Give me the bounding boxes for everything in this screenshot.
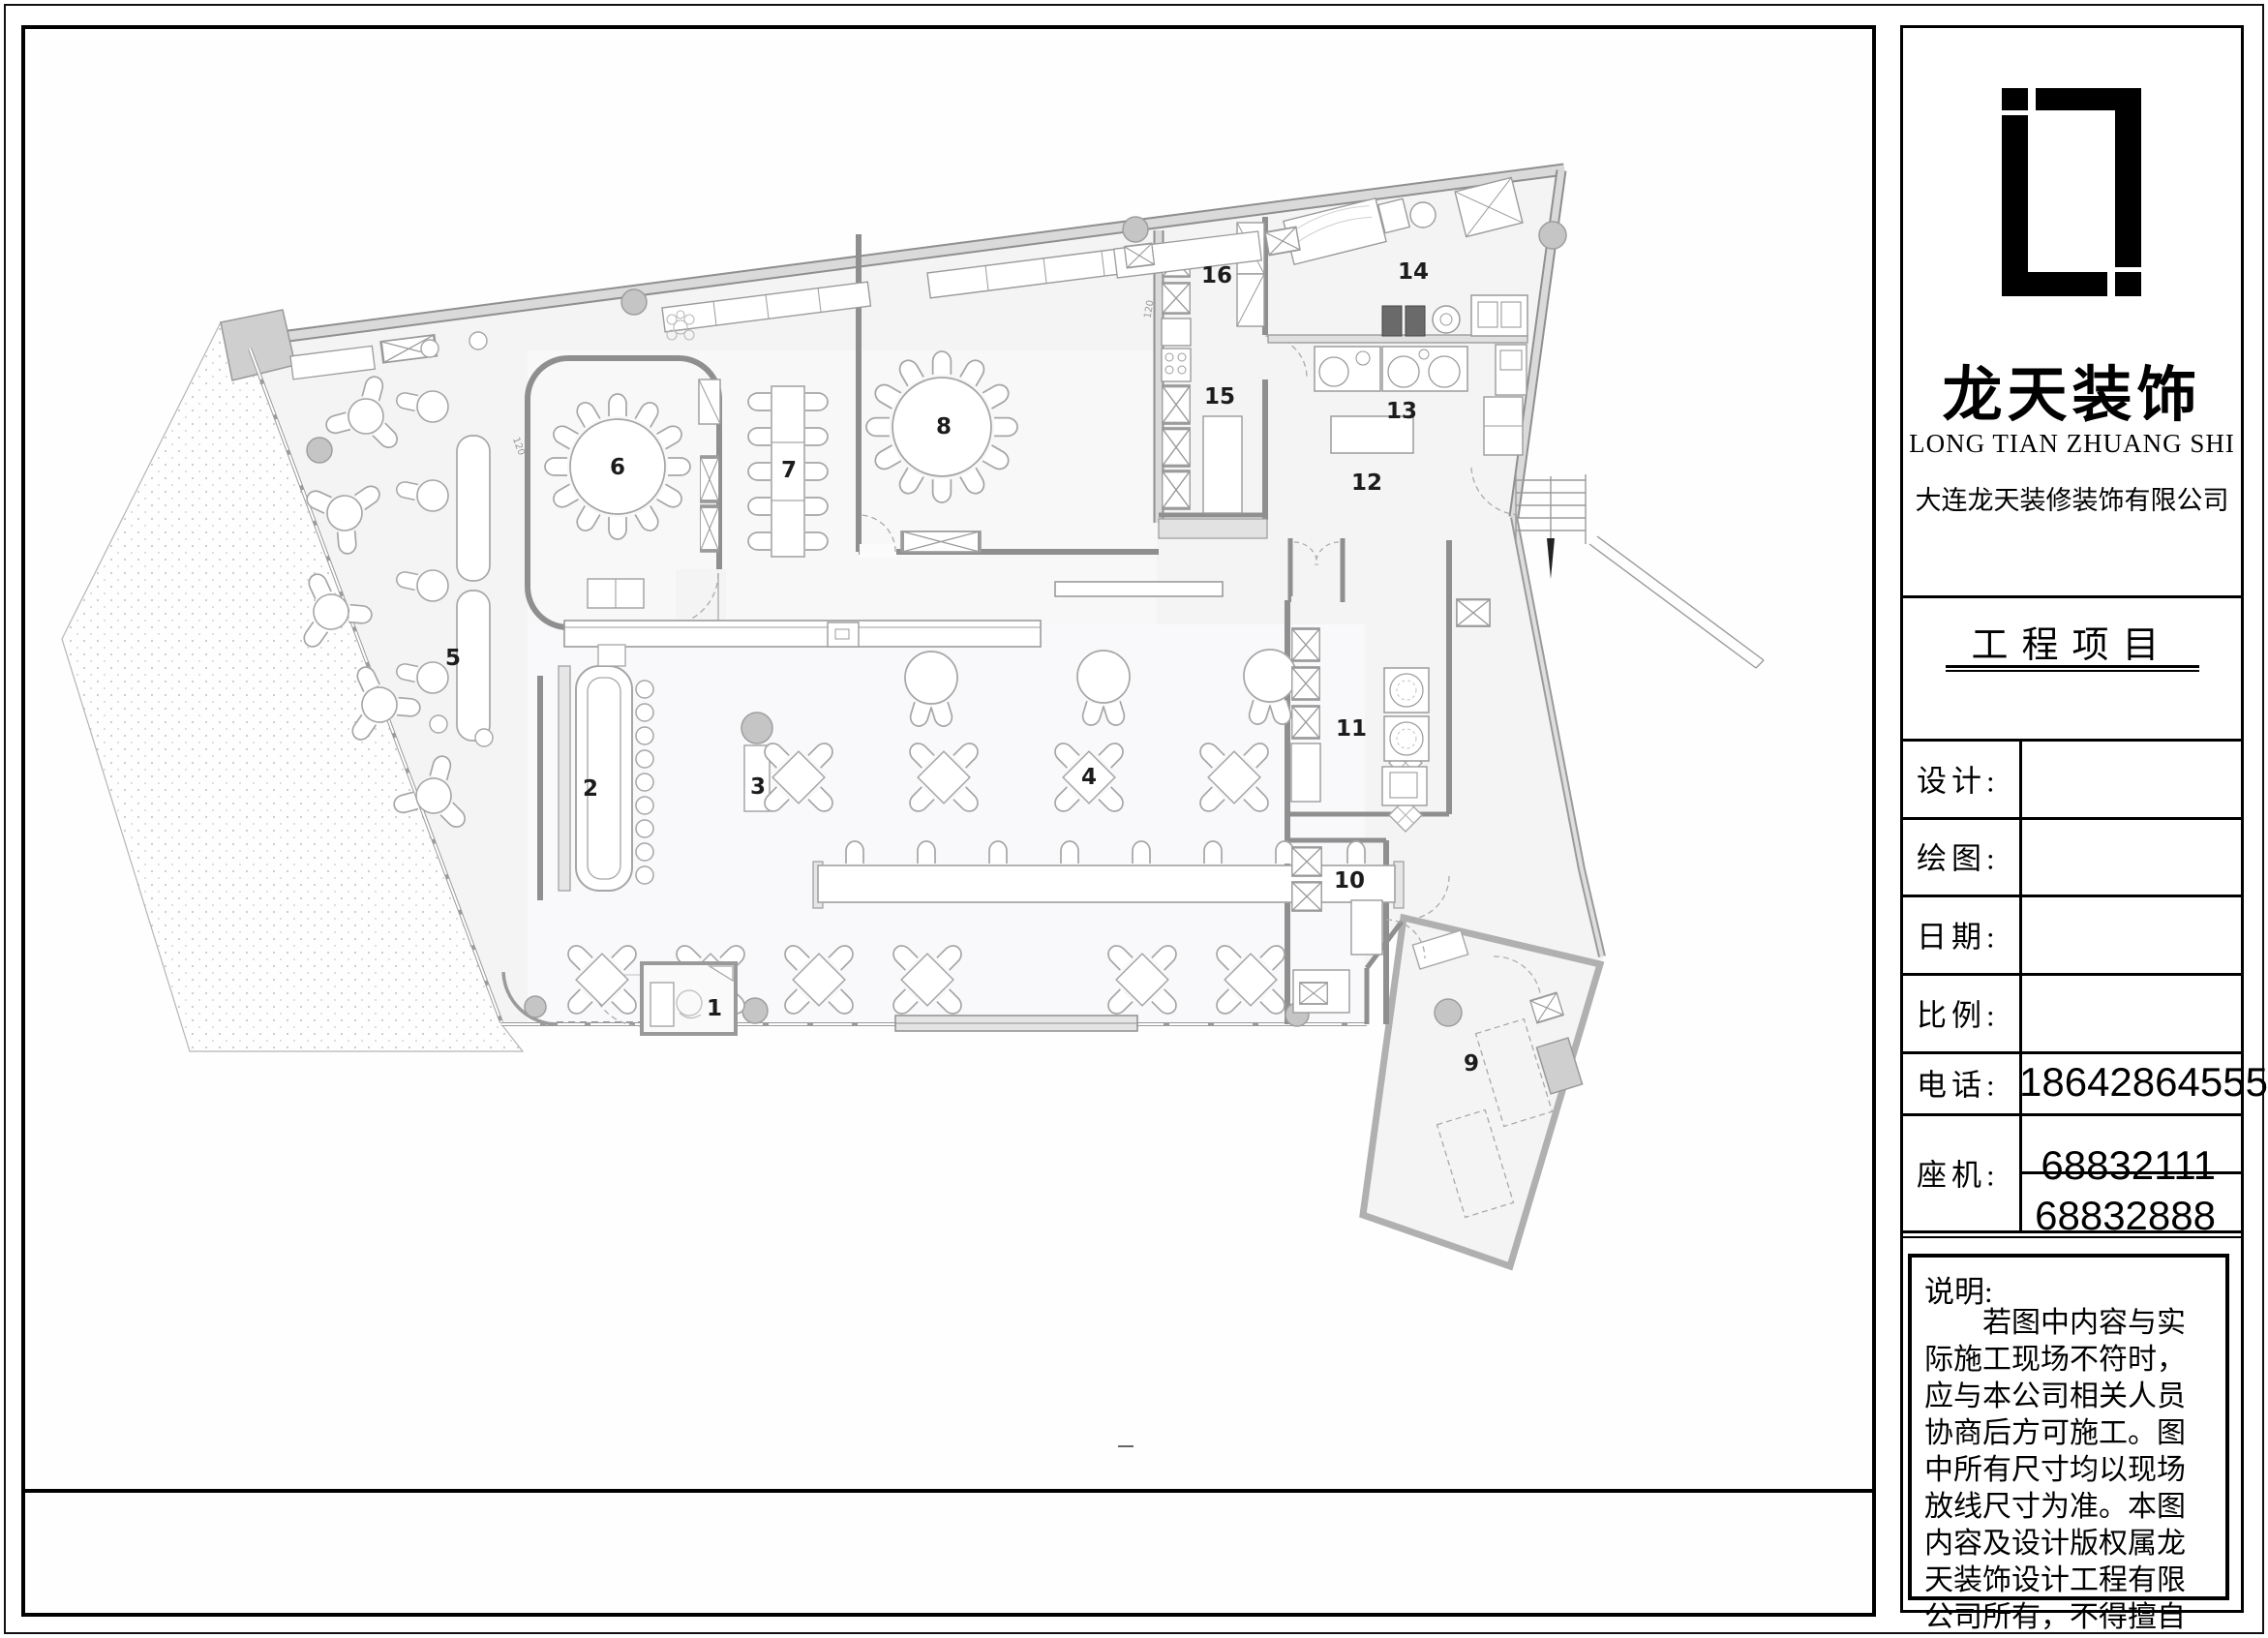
landline-value-1: 68832111 [2019, 1142, 2241, 1189]
notes-box: 说明: 若图中内容与实际施工现场不符时，应与本公司相关人员协商后方可施工。图中所… [1908, 1254, 2229, 1600]
room-label-6: 6 [610, 455, 625, 480]
date-label: 日期: [1917, 912, 2000, 955]
panel-divider [1903, 595, 2241, 598]
logo-glyph-icon [2000, 88, 2145, 301]
room-label-14: 14 [1398, 259, 1429, 285]
room-label-7: 7 [781, 458, 797, 483]
room-label-2: 2 [583, 776, 598, 802]
exterior-stair [1516, 474, 1764, 668]
room-label-9: 9 [1464, 1051, 1479, 1077]
row-scale: 比例: [1903, 973, 2241, 1051]
row-phone: 电话: 18642864555 [1903, 1051, 2241, 1113]
project-title-underline [1946, 665, 2199, 672]
project-section-title: 工程项目 [1903, 615, 2241, 668]
table-bottom-double-line [1903, 1236, 2241, 1238]
room-9-annex [1363, 918, 1600, 1266]
room-label-16: 16 [1201, 263, 1232, 288]
room-label-5: 5 [445, 646, 461, 671]
scale-label: 比例: [1917, 990, 2000, 1034]
row-draw: 绘图: [1903, 817, 2241, 895]
table-bottom-border [1903, 1230, 2241, 1233]
room-label-13: 13 [1386, 399, 1417, 424]
row-date: 日期: [1903, 895, 2241, 973]
landline-split-line [2019, 1171, 2241, 1174]
landline-label: 座机: [1917, 1150, 2000, 1194]
design-label: 设计: [1917, 756, 2000, 800]
notes-body: 若图中内容与实际施工现场不符时，应与本公司相关人员协商后方可施工。图中所有尺寸均… [1924, 1305, 2213, 1638]
room-label-1: 1 [707, 996, 722, 1021]
room-label-3: 3 [750, 774, 766, 800]
company-name-en: LONG TIAN ZHUANG SHI [1903, 429, 2241, 459]
phone-value: 18642864555 [2019, 1059, 2241, 1106]
company-name-cn: 龙天装饰 [1903, 346, 2241, 433]
room-label-4: 4 [1081, 765, 1097, 790]
room-label-10: 10 [1334, 868, 1365, 894]
room-label-12: 12 [1351, 470, 1382, 496]
title-block-panel: 龙天装饰 LONG TIAN ZHUANG SHI 大连龙天装修装饰有限公司 工… [1900, 25, 2244, 1613]
company-logo [1903, 88, 2241, 306]
row-design: 设计: [1903, 739, 2241, 817]
phone-label: 电话: [1917, 1061, 2000, 1105]
room-label-8: 8 [936, 414, 952, 440]
company-full-name: 大连龙天装修装饰有限公司 [1903, 479, 2241, 517]
draw-label: 绘图: [1917, 834, 2000, 878]
room-label-11: 11 [1336, 716, 1367, 742]
room-label-15: 15 [1204, 384, 1235, 409]
drawing-sheet: 1 2 3 4 5 6 7 8 9 10 11 12 13 14 15 16 1… [0, 0, 2268, 1638]
